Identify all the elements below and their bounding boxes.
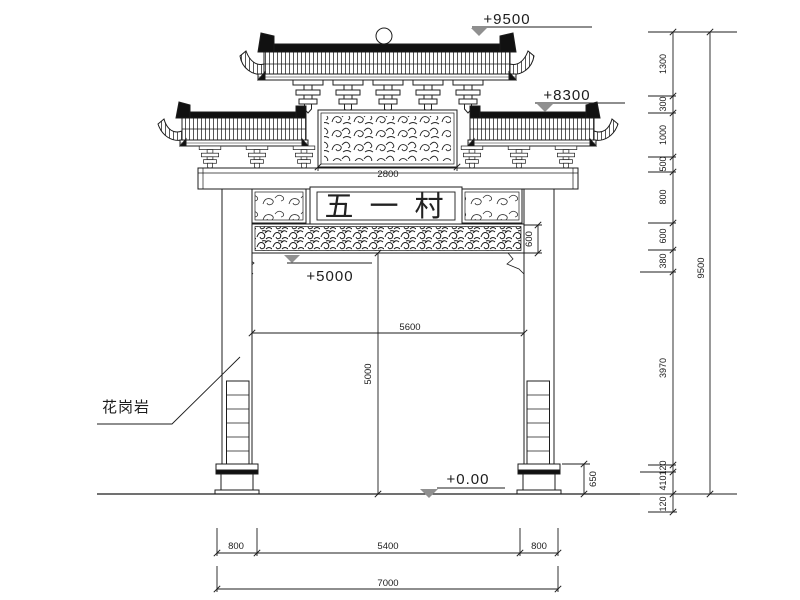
bottom-dim-total: 7000	[377, 578, 398, 589]
dim-label-opening-width: 5600	[399, 322, 420, 333]
level-label-second-roof: +8300	[543, 87, 590, 104]
bottom-dim-left: 800	[228, 541, 244, 552]
right-side-roof	[461, 102, 618, 170]
chain-dim-1: 1300	[658, 54, 668, 74]
bottom-dim-center: 5400	[377, 541, 398, 552]
chain-ticks	[630, 32, 737, 512]
bottom-dim-labels: 800 5400 800 7000	[228, 541, 547, 589]
top-roof-right-eave-tip	[510, 51, 534, 74]
chain-dim-10: 410	[658, 475, 668, 490]
left-column-base	[215, 464, 259, 494]
dim-opening-width	[249, 330, 527, 336]
paifang-gate-elevation-drawing: +9500 +8300 +5000 +0.00 五一村 花岗岩 2800 560…	[0, 0, 800, 600]
top-roof-bracket-sets	[293, 80, 483, 113]
dim-label-panel-width: 2800	[377, 169, 398, 180]
right-pedestal-band	[527, 381, 550, 465]
right-roof-eave-tip	[594, 119, 618, 140]
chain-dim-3: 1000	[658, 125, 668, 145]
chain-dim-6: 600	[658, 228, 668, 243]
bottom-dim-right: 800	[531, 541, 547, 552]
level-label-ground: +0.00	[447, 471, 490, 488]
dim-pedestal-height	[562, 461, 590, 497]
top-roof-tiles	[264, 52, 510, 74]
top-roof-left-eave-tip	[240, 51, 264, 74]
chain-dim-7: 380	[658, 253, 668, 268]
central-carved-panel	[318, 110, 457, 167]
left-roof-eave-tip	[158, 119, 182, 140]
top-roof-ridge	[270, 44, 504, 52]
chain-dim-2: 300	[658, 96, 668, 111]
annotation-texts: +9500 +8300 +5000 +0.00 五一村 花岗岩 2800 560…	[102, 11, 707, 589]
dim-label-frieze-height: 600	[524, 231, 535, 247]
chain-dim-labels: 1300 300 1000 500 800 600 380 3970 120 4…	[658, 54, 668, 512]
dim-opening-height	[375, 250, 381, 497]
carved-frieze-band	[247, 224, 524, 274]
chain-dim-11: 120	[658, 496, 668, 511]
level-triangle-icon-5000	[284, 255, 300, 263]
right-dimension-chain	[630, 29, 737, 515]
dim-label-total-height: 9500	[696, 257, 707, 278]
right-column-base	[517, 464, 561, 494]
level-triangle-icon-8300	[537, 104, 553, 112]
right-roof-ridge	[472, 112, 590, 118]
top-roof	[240, 28, 534, 80]
material-label: 花岗岩	[102, 399, 150, 416]
ridge-finial-ornament	[376, 28, 392, 44]
level-label-plaque-band: +5000	[306, 268, 353, 285]
level-triangle-icon-9500	[471, 28, 487, 36]
dim-label-opening-height: 5000	[363, 363, 374, 384]
chain-dim-5: 800	[658, 189, 668, 204]
top-roof-right-ridge-end	[500, 33, 516, 52]
chain-dim-8: 3970	[658, 358, 668, 378]
chain-dim-4: 500	[658, 156, 668, 171]
left-roof-ridge	[186, 112, 304, 118]
left-pedestal-band	[227, 381, 250, 465]
dim-label-pedestal-height: 650	[588, 471, 599, 487]
right-break-line	[507, 253, 524, 274]
level-label-top: +9500	[483, 11, 530, 28]
plaque-text: 五一村	[324, 190, 459, 223]
cad-elevation-sheet: +9500 +8300 +5000 +0.00 五一村 花岗岩 2800 560…	[0, 0, 800, 600]
chain-dim-9: 120	[658, 460, 668, 475]
left-side-roof	[158, 102, 315, 170]
top-roof-left-ridge-end	[258, 33, 274, 52]
